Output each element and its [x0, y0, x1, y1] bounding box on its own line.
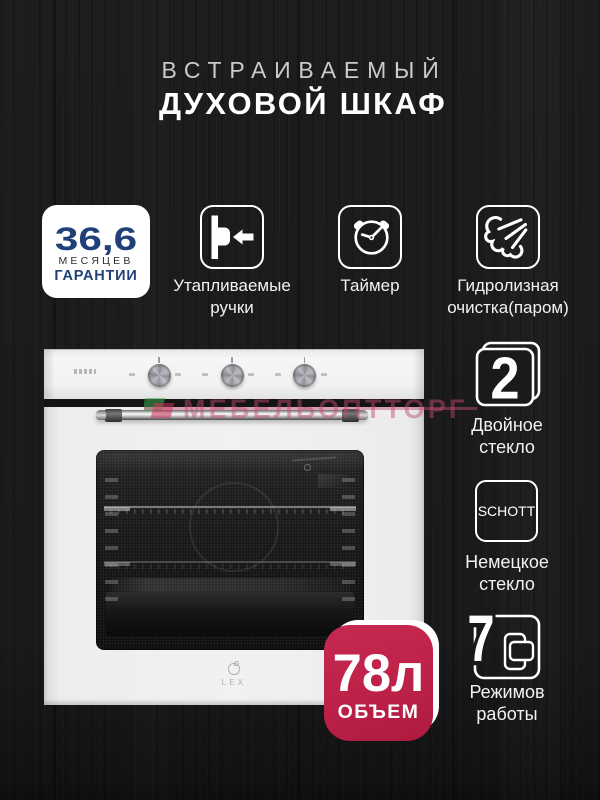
svg-text:2: 2 [490, 345, 519, 411]
svg-text:7: 7 [467, 608, 494, 676]
